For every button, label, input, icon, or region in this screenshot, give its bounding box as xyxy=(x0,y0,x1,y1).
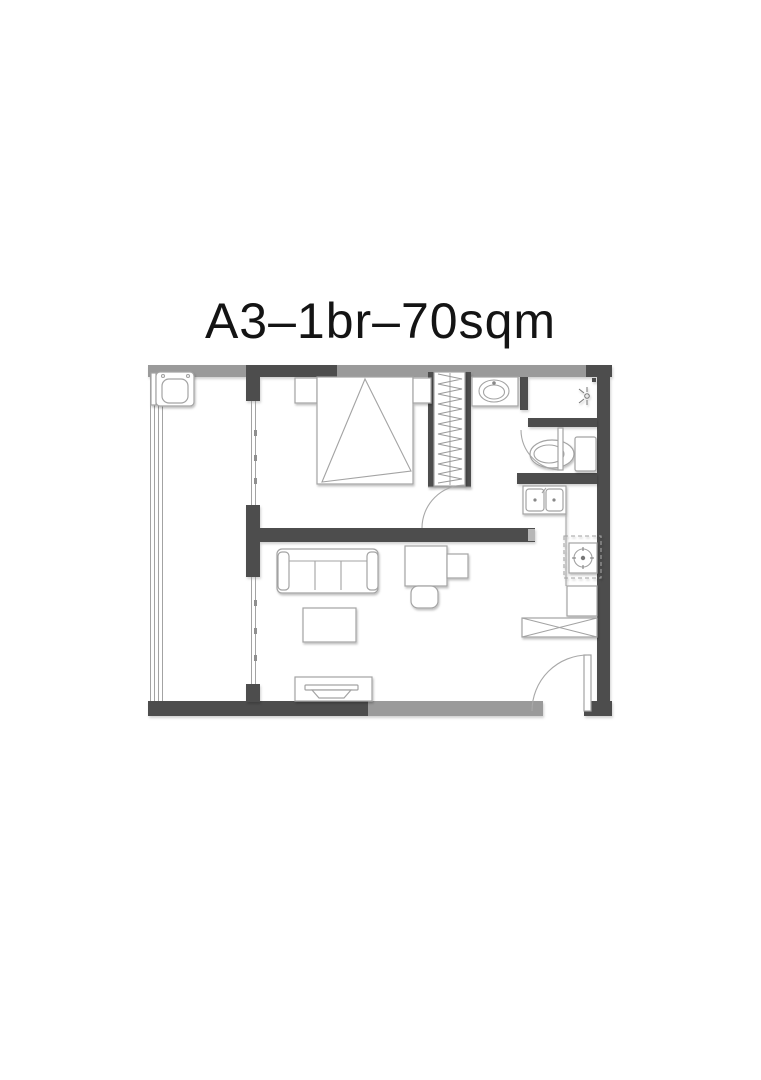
right-wall xyxy=(597,365,610,716)
floorplan-page: A3–1br–70sqm xyxy=(0,0,761,1080)
wall-stud-dot xyxy=(592,378,596,382)
wardrobe-right-wall xyxy=(465,372,471,487)
desk-icon xyxy=(405,546,447,586)
divider-wall-end-cap xyxy=(528,529,535,541)
balcony-sliding-door-bedroom xyxy=(252,401,258,505)
balcony-sliding-door-living xyxy=(252,577,258,684)
balcony-window xyxy=(151,377,163,701)
top-wall-dark-segment xyxy=(246,365,337,377)
bedroom-living-divider-wall xyxy=(246,528,535,542)
bathroom-left-wall xyxy=(520,377,528,410)
desk-chair-icon xyxy=(411,586,438,608)
sofa-icon xyxy=(277,549,378,593)
wc-bottom-wall xyxy=(517,473,597,484)
bottom-wall-dark xyxy=(148,701,368,716)
wardrobe-icon xyxy=(428,372,471,487)
cooktop-icon xyxy=(564,536,601,578)
bed-icon xyxy=(317,377,413,484)
nightstand-right-icon xyxy=(413,378,431,403)
top-wall xyxy=(148,365,612,377)
shoe-cabinet-icon xyxy=(522,618,597,637)
vanity-basin-icon xyxy=(472,377,518,406)
washing-machine-icon xyxy=(151,372,194,406)
shower-wc-divider-wall xyxy=(528,418,597,427)
tv-console-icon xyxy=(295,677,372,701)
side-table-icon xyxy=(447,554,468,578)
floorplan-drawing xyxy=(0,0,761,1080)
bedroom-door-arc xyxy=(422,485,465,528)
shower-head-icon xyxy=(579,387,589,405)
balcony-partition-top-stub xyxy=(246,377,260,401)
bottom-wall-light xyxy=(368,701,543,716)
nightstand-left-icon xyxy=(295,378,317,403)
inner-walls xyxy=(246,372,597,702)
coffee-table-icon xyxy=(303,608,356,642)
balcony-partition-bottom-column xyxy=(246,684,260,702)
kitchen-sink-icon xyxy=(523,486,566,514)
